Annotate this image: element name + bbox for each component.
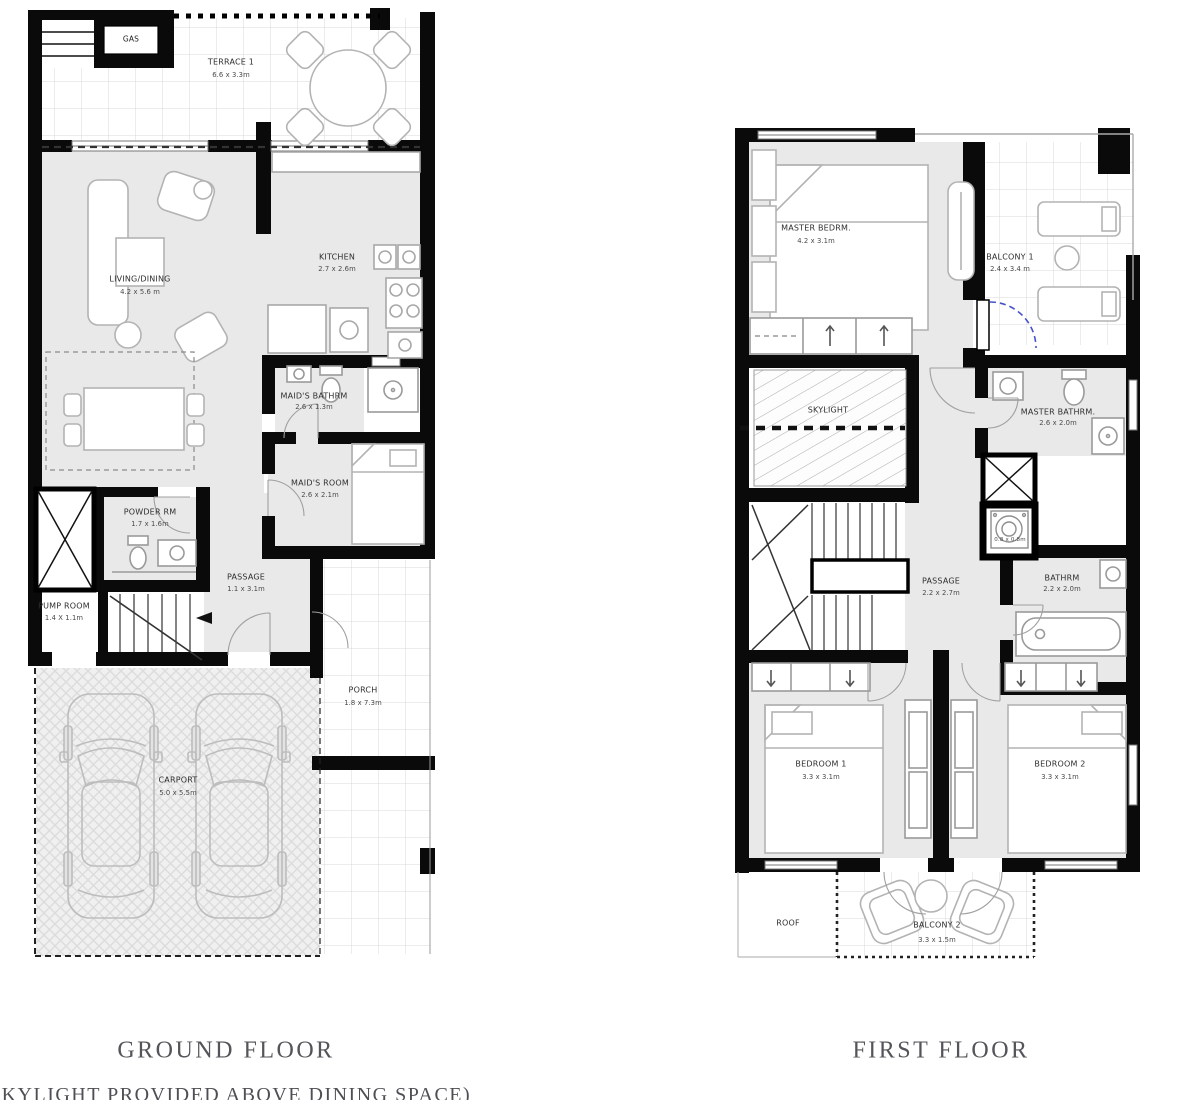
room-label-bathrm: BATHRM <box>1045 573 1080 582</box>
room-dims-powder: 1.7 x 1.6m <box>131 521 169 529</box>
floor-plan-drawing <box>0 0 1178 1100</box>
room-dims-balcony1: 2.4 x 3.4 m <box>990 266 1030 274</box>
room-label-master: MASTER BEDRM. <box>781 223 851 232</box>
skylight-icon <box>740 370 906 486</box>
stairs-first-icon <box>752 503 908 650</box>
room-label-bedroom1: BEDROOM 1 <box>795 759 846 768</box>
room-dims-balcony2: 3.3 x 1.5m <box>918 937 956 945</box>
room-dims-bedroom1: 3.3 x 3.1m <box>802 774 840 782</box>
room-dims-bathrm: 2.2 x 2.0m <box>1043 586 1081 594</box>
ground-floor-plan <box>28 8 435 956</box>
room-label-gas: GAS <box>123 36 139 45</box>
room-label-balcony2: BALCONY 2 <box>913 920 961 929</box>
floor-plan-sheet: GAS TERRACE 1 6.6 x 3.3m LIVING/DINING 4… <box>0 0 1178 1100</box>
room-dims-passage-g: 1.1 x 3.1m <box>227 586 265 594</box>
room-dims-living: 4.2 x 5.6 m <box>120 289 160 297</box>
first-floor-title: FIRST FLOOR <box>852 1038 1029 1065</box>
room-label-terrace: TERRACE 1 <box>208 57 254 66</box>
room-dims-kitchen: 2.7 x 2.6m <box>318 266 356 274</box>
room-label-pump: PUMP ROOM <box>38 601 90 610</box>
room-label-balcony1: BALCONY 1 <box>986 252 1034 261</box>
skylight-note: (SKYLIGHT PROVIDED ABOVE DINING SPACE) <box>0 1084 471 1100</box>
room-dims-maids-bath: 2.6 x 1.3m <box>295 404 333 412</box>
room-label-powder: POWDER RM <box>124 507 177 516</box>
room-dims-wm: 0.8 x 0.8m <box>994 537 1026 543</box>
room-label-kitchen: KITCHEN <box>319 252 355 261</box>
room-dims-passage-f: 2.2 x 2.7m <box>922 590 960 598</box>
room-label-carport: CARPORT <box>158 775 197 784</box>
room-dims-master-bath: 2.6 x 2.0m <box>1039 420 1077 428</box>
ground-floor-title: GROUND FLOOR <box>117 1038 334 1065</box>
room-label-passage-f: PASSAGE <box>922 576 960 585</box>
maid-bed-icon <box>352 444 424 544</box>
roof-edge <box>738 872 836 957</box>
room-label-maids-bath: MAID'S BATHRM <box>280 391 347 400</box>
room-label-skylight: SKYLIGHT <box>808 405 848 414</box>
room-dims-pump: 1.4 X 1.1m <box>45 615 83 623</box>
room-label-living: LIVING/DINING <box>109 274 170 283</box>
room-label-master-bath: MASTER BATHRM. <box>1021 407 1096 416</box>
room-label-passage-g: PASSAGE <box>227 572 265 581</box>
room-dims-porch: 1.8 x 7.3m <box>344 700 382 708</box>
room-label-roof: ROOF <box>776 918 800 927</box>
first-floor-plan <box>735 128 1140 958</box>
room-dims-master: 4.2 x 3.1m <box>797 238 835 246</box>
room-label-bedroom2: BEDROOM 2 <box>1034 759 1085 768</box>
master-closet-icon <box>750 318 912 354</box>
room-label-porch: PORCH <box>349 685 378 694</box>
room-dims-bedroom2: 3.3 x 3.1m <box>1041 774 1079 782</box>
room-dims-maids-room: 2.6 x 2.1m <box>301 492 339 500</box>
room-dims-terrace: 6.6 x 3.3m <box>212 72 250 80</box>
room-label-maids-room: MAID'S ROOM <box>291 478 349 487</box>
stairs-ground-icon <box>110 594 202 660</box>
room-dims-carport: 5.0 x 5.5m <box>159 790 197 798</box>
